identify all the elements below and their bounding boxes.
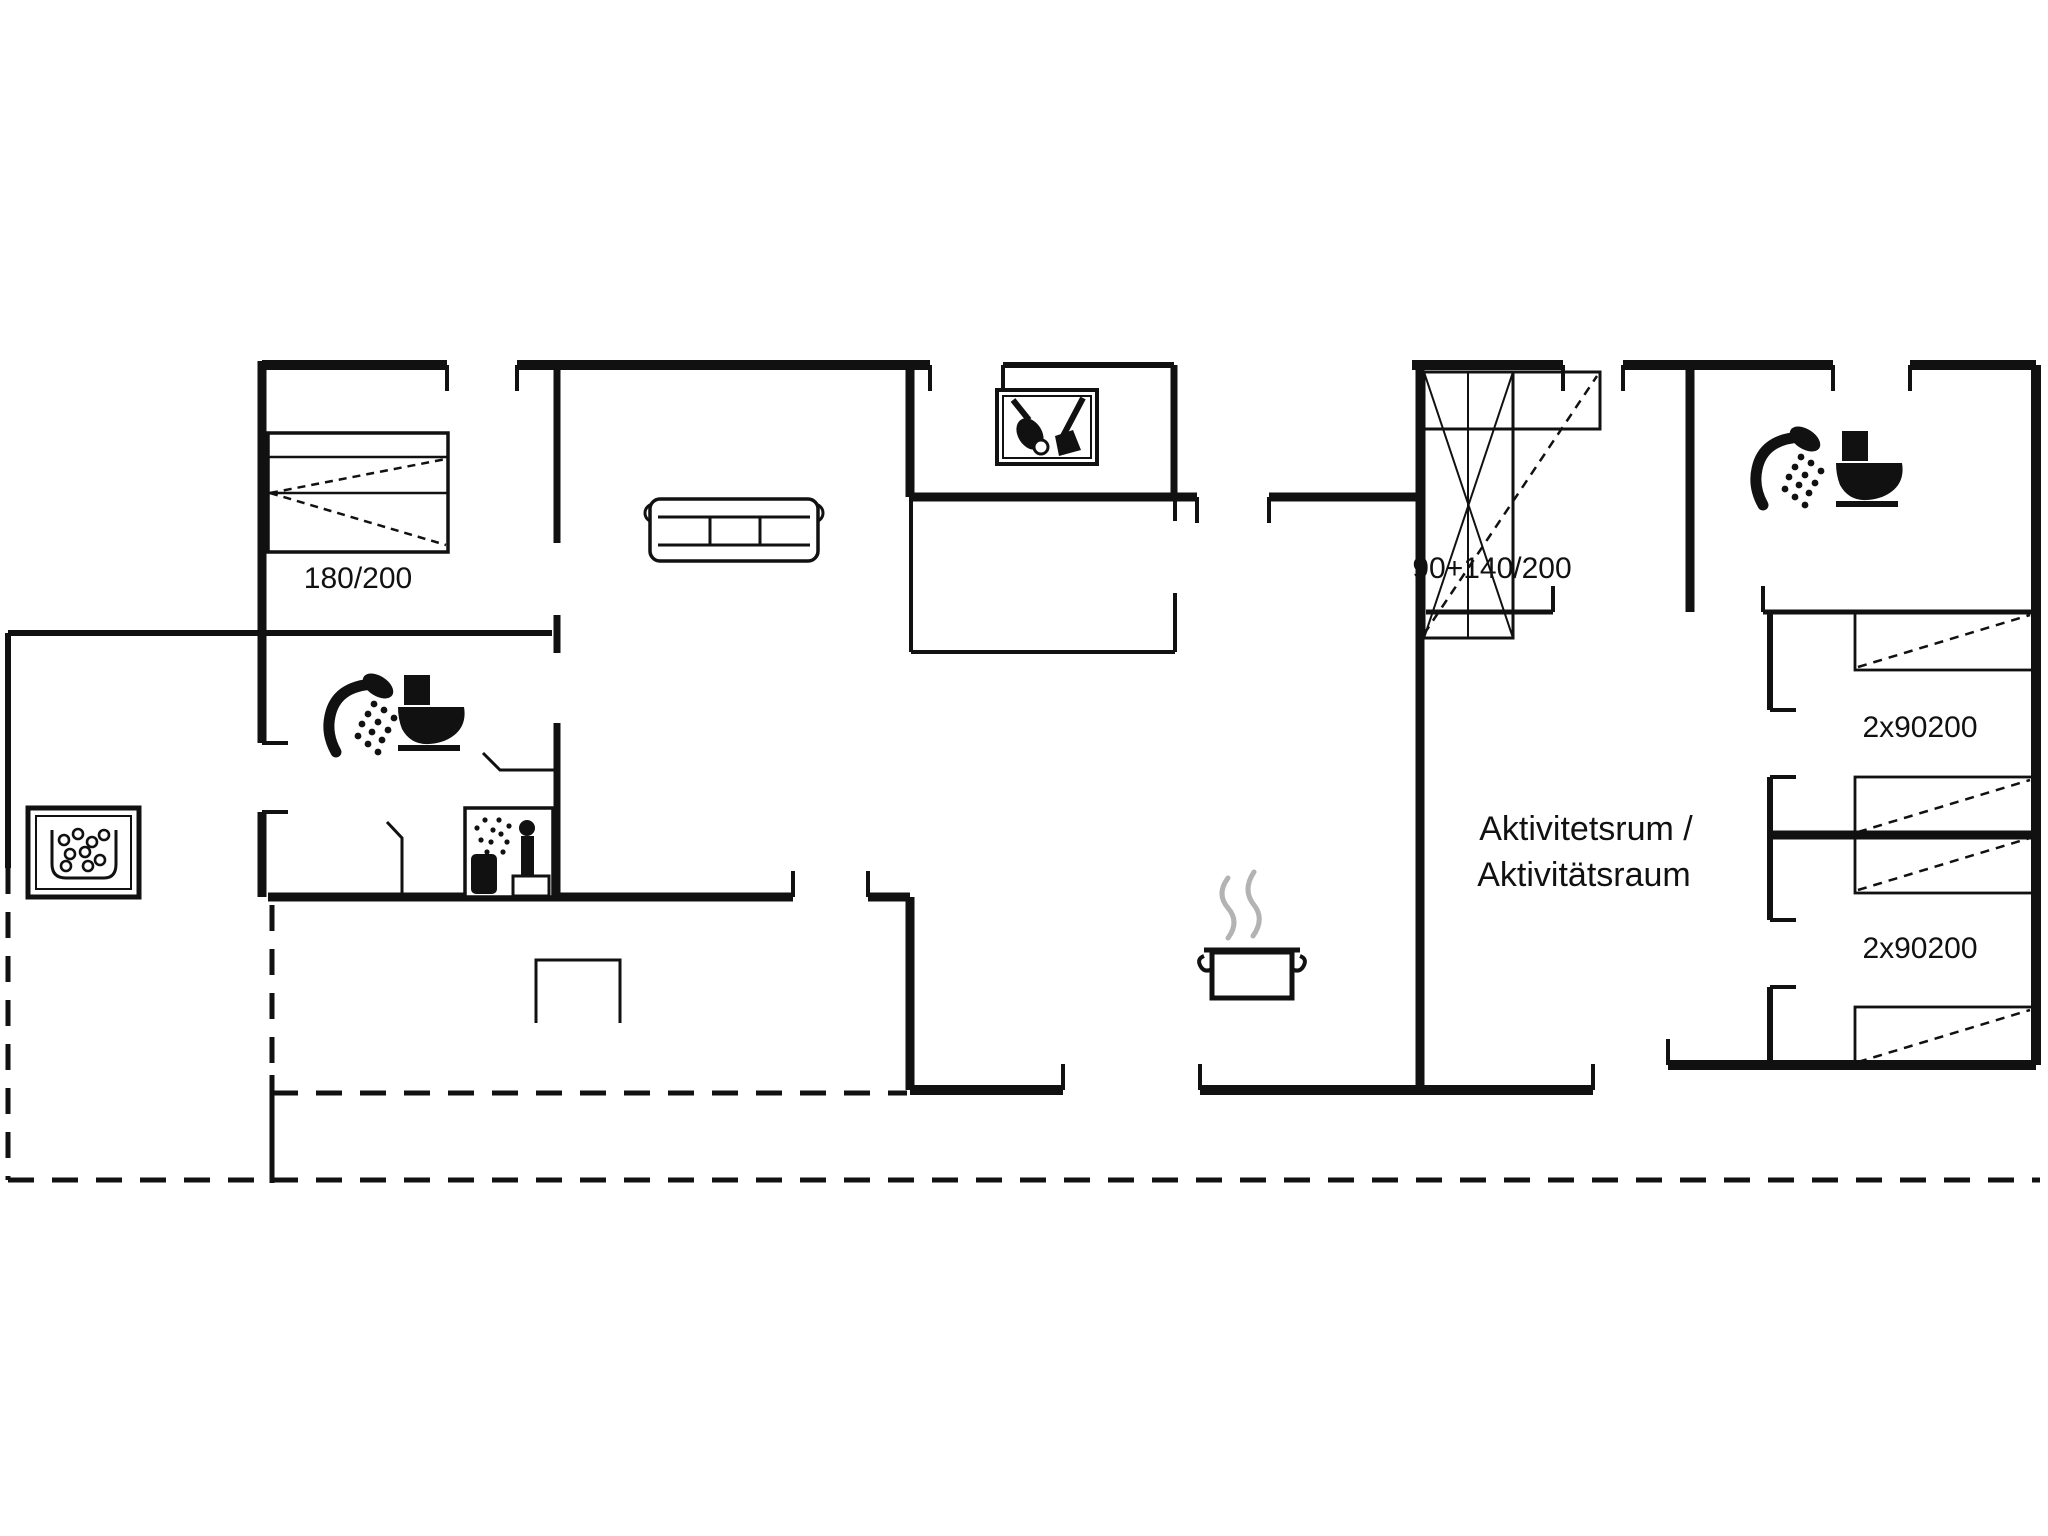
single-bed-icon (1855, 1007, 2033, 1065)
sofa-icon (645, 499, 823, 561)
door-leaf (387, 822, 402, 897)
dimension-label: 2x90200 (1862, 932, 1977, 965)
door-leaf (483, 753, 557, 770)
room-label: Aktivitätsraum (1477, 856, 1691, 894)
cleaning-closet-icon (997, 390, 1097, 464)
dimension-label: 90+140/200 (1412, 552, 1571, 585)
room-label: Aktivitetsrum / (1479, 810, 1693, 848)
hot-tub-icon (28, 808, 139, 897)
floor-plan-page: 180/20090+140/200Aktivitetsrum /Aktivitä… (0, 0, 2048, 1536)
toilet-icon (1836, 431, 1903, 507)
door-jamb-ticks (262, 365, 1910, 1090)
floor-plan: 180/20090+140/200Aktivitetsrum /Aktivitä… (0, 0, 2048, 1536)
single-bed-icon (1855, 777, 2033, 835)
single-bed-icon (1855, 612, 2033, 670)
shower-icon (1756, 421, 1825, 508)
toilet-icon (398, 675, 465, 751)
cooking-pot-icon (1199, 872, 1305, 998)
single-bed-icon (1855, 835, 2033, 893)
shower-icon (329, 668, 398, 755)
terrace-dashed-layer (8, 868, 2040, 1180)
sauna-icon (465, 808, 553, 897)
dimension-label: 2x90200 (1862, 711, 1977, 744)
window-bed-icon (1424, 372, 1600, 638)
terrace-table-icon (536, 960, 620, 1023)
double-bed-icon (268, 433, 448, 552)
dimension-label: 180/200 (304, 562, 412, 595)
